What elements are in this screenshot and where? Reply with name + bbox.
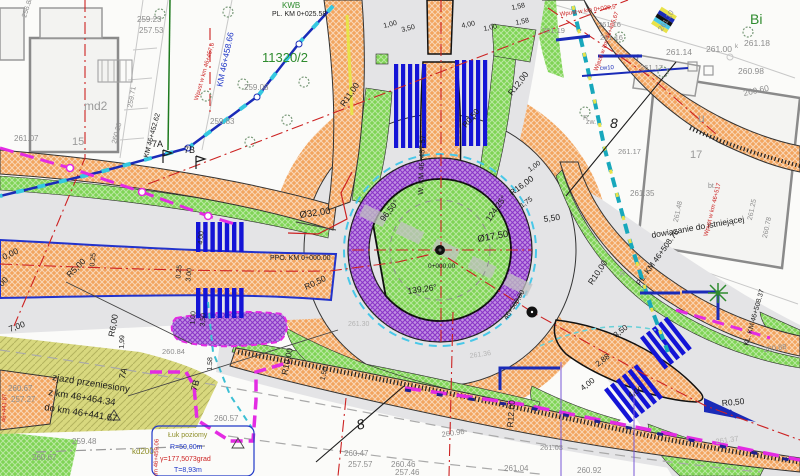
elev-257-57: 257.57 — [348, 460, 373, 469]
shrub-r2: R — [620, 271, 625, 278]
elev-260-67b: 260.67 — [32, 453, 57, 462]
dim-0-25a: 0.25 — [89, 253, 97, 267]
dim-r0-50-se: R0,50 — [721, 396, 745, 408]
parcel-17: 17 — [690, 149, 702, 161]
utility-cw10: cw10 — [600, 65, 615, 72]
elev-261-17: 261.17 — [640, 63, 663, 72]
elev-261-03: 261.03 — [540, 443, 563, 452]
conifer-icon — [708, 283, 728, 303]
elev-261-07: 261.07 — [14, 134, 39, 143]
elev-260-98: 260.98 — [738, 66, 764, 76]
marker-7a-top: 7A — [152, 139, 163, 149]
center-point — [435, 245, 445, 255]
elev-259-48: 259.48 — [72, 437, 97, 446]
dim-3-00: 3.00 — [185, 268, 193, 282]
section-8-top: 8 — [610, 115, 618, 131]
elev-261-16: 261.16 — [598, 20, 621, 29]
elev-261-18: 261.18 — [744, 38, 770, 48]
elev-260-67a: 260.67 — [8, 384, 33, 393]
soil-bi: Bi — [750, 11, 762, 27]
elev-259-83: 259.83 — [210, 117, 235, 126]
splitter-island-sw — [172, 312, 287, 346]
parcel-15: 15 — [72, 136, 84, 148]
dim-0-25b: 0.25 — [175, 265, 183, 279]
elev-257-53: 257.53 — [139, 26, 164, 35]
elev-261-00: 261.00 — [706, 44, 732, 54]
curve-gamma: γ=177,5073grad — [160, 456, 211, 463]
elev-261-14: 261.14 — [666, 47, 692, 57]
elev-261-04: 261.04 — [504, 464, 529, 473]
building-label-md2: md2 — [84, 99, 108, 113]
utility-kwb: KWB — [282, 1, 300, 10]
station-point-46-500 — [527, 307, 538, 318]
site-plan-svg: 259.23257.53256.86md215261.07259.71260.2… — [0, 0, 800, 476]
elev-260-47: 260.47 — [344, 449, 369, 458]
elev-261-17b: 261.17 — [618, 147, 641, 156]
dim-1-58-south: 1.58 — [207, 357, 214, 371]
elev-260-84: 260.84 — [162, 347, 185, 356]
shrub-r1: R — [583, 115, 588, 122]
station-46-441: 46+441.87 — [2, 393, 9, 422]
dim-r12-se: R12,00 — [505, 400, 517, 428]
splitter-island-north-head — [427, 0, 453, 54]
drawing-canvas[interactable]: 259.23257.53256.86md215261.07259.71260.2… — [0, 0, 800, 476]
marker-7b-top: 7B — [184, 145, 195, 155]
elev-257-27: 257.27 — [11, 395, 36, 404]
elev-260-57: 260.57 — [214, 414, 239, 423]
elev-257-46: 257.46 — [395, 468, 420, 476]
parcel-11320-2: 11320/2 — [262, 50, 308, 65]
dim-1-00-west: 1,00 — [190, 311, 198, 325]
building-label-u: u — [698, 111, 705, 125]
elev-259-23: 259.23 — [137, 15, 162, 24]
elev-260-92: 260.92 — [577, 466, 602, 475]
elev-261-30: 261.30 — [348, 321, 370, 328]
elev-261-35: 261.35 — [630, 189, 655, 198]
station-0-000: 0+000,00 — [428, 263, 456, 270]
dim-1-99: 1,99 — [119, 335, 126, 349]
curve-tangent: T=8,93m — [174, 467, 202, 474]
station-ppo: PPO. KM 0+000.00 — [270, 255, 331, 262]
curve-title: Łuk poziomy — [168, 432, 208, 439]
elev-261-16b: 261.16 — [600, 33, 623, 42]
station-pl-km-0-025: PL. KM 0+025.58 — [272, 11, 326, 18]
curve-radius: R=50,00m — [170, 444, 203, 451]
elev-261-19: 261.19 — [542, 26, 565, 35]
utility-kd200: kd200 — [132, 447, 154, 456]
dim-3-50-west: 3,50 — [200, 313, 208, 327]
dim-4-00-west: 4.00 — [198, 231, 206, 245]
elev-259-08: 259.08 — [244, 83, 269, 92]
